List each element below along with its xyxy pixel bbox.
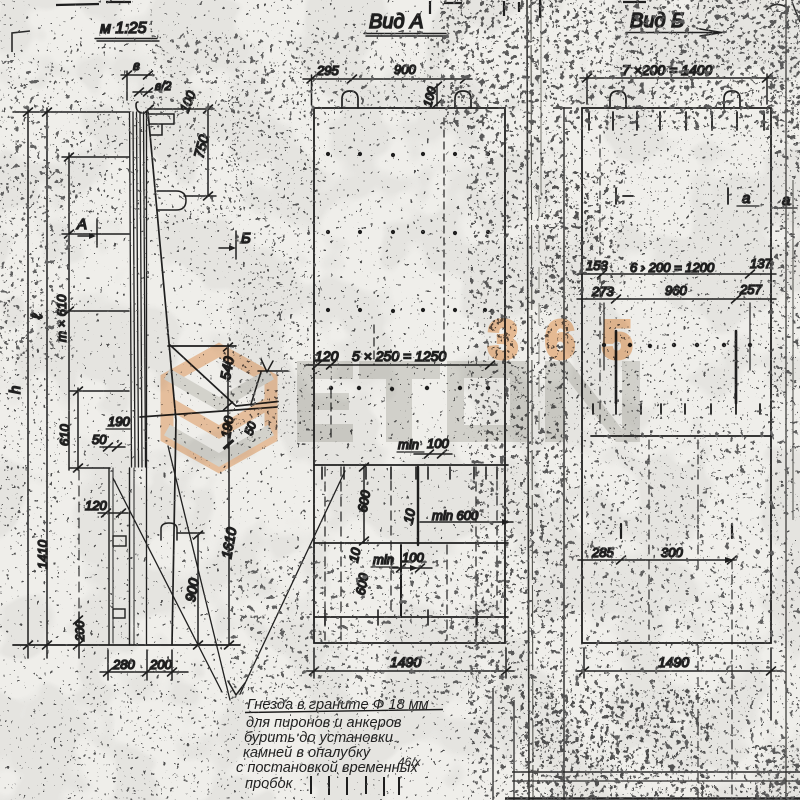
svg-text:365: 365 — [488, 310, 659, 370]
